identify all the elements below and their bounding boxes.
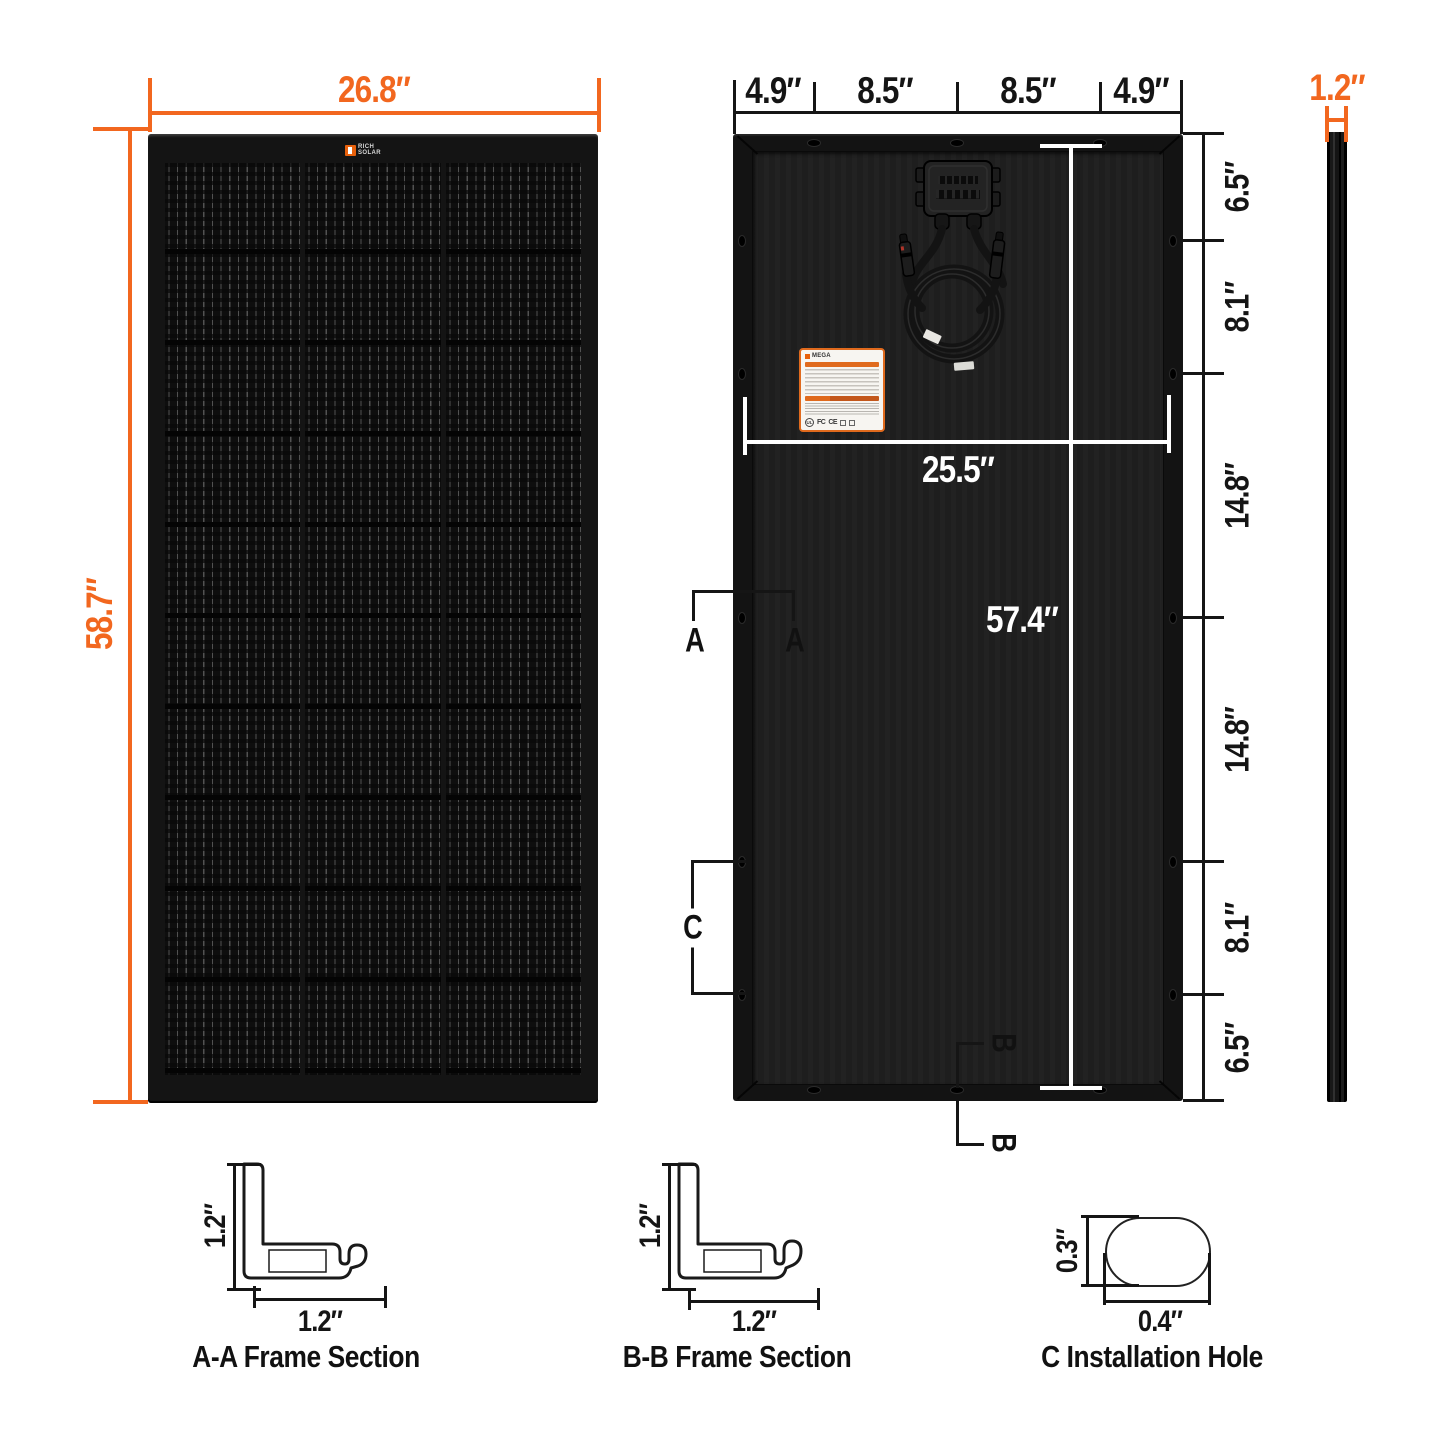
front-width-dim-line [148,111,600,115]
back-top-dim-tick [813,82,816,113]
frame-hole [1170,236,1176,246]
rich-solar-logo-icon [345,145,356,156]
front-panel-view: RICH SOLAR [148,134,598,1103]
back-top-dim-tick [1099,82,1102,113]
spec-label-logo-icon [805,354,810,359]
back-right-dim-tick [1183,372,1224,375]
c-width-dim-tick [1208,1253,1211,1305]
c-height-dim-tick [1081,1284,1139,1287]
back-right-dim-tick [1183,860,1224,863]
side-thickness-label: 1.2″ [1309,67,1364,109]
solar-cell-grid [165,163,581,1075]
installation-hole-shape [1105,1217,1211,1287]
logo-line2: SOLAR [358,151,381,157]
spec-label: MEGA UL FC CE [799,348,885,432]
front-height-dim-tick-top [93,127,150,131]
spec-label-title-bar [805,362,879,367]
back-right-height-label-1: 6.5″ [1219,162,1258,213]
installation-hole-marker-c: C [681,909,705,948]
back-right-dim-tick [1183,616,1224,619]
spec-label-warning-bar [805,396,879,401]
cell-column-group [446,163,581,1075]
back-right-height-label-2: 8.1″ [1219,282,1258,333]
section-b-bracket-line [956,1101,959,1146]
ul-mark-icon: UL [805,418,814,427]
frame-hole [739,236,745,246]
back-top-width-label-2: 8.5″ [857,70,912,112]
rich-solar-logo: RICH SOLAR [345,145,381,156]
section-a-bracket-line [692,590,795,593]
section-marker-b-top: B [984,1033,1023,1053]
solar-panel-dimension-diagram: RICH SOLAR 26.8″ 58.7″ [0,0,1445,1445]
front-width-dim-tick-left [148,78,152,132]
frame-hole [951,140,963,146]
bb-width-dim-line [688,1300,820,1303]
bb-width-label: 1.2″ [732,1305,776,1339]
front-height-dim-line [128,129,132,1103]
spec-label-fine-print [805,403,879,415]
cell-column-group [165,163,300,1075]
back-top-width-label-4: 4.9″ [1113,70,1168,112]
back-top-width-label-1: 4.9″ [745,70,800,112]
spec-label-certifications: UL FC CE [805,418,879,427]
junction-box-and-cables [888,156,1028,376]
front-height-dim-tick-bottom [93,1100,148,1104]
side-thickness-dim-tick [1325,106,1329,142]
aa-width-dim-tick [384,1286,387,1308]
frame-hole [1170,857,1176,867]
c-hole-caption: C Installation Hole [1041,1339,1263,1375]
bb-section-caption: B-B Frame Section [623,1339,852,1375]
frame-hole [1170,613,1176,623]
aa-width-label: 1.2″ [298,1305,342,1339]
side-thickness-dim-tick [1344,106,1348,142]
section-b-bracket-line [956,1143,984,1146]
inner-height-dim-line [1069,146,1073,1090]
cert-square-icon [840,420,846,426]
frame-miter [1159,135,1180,155]
front-width-label: 26.8″ [338,69,410,111]
inner-width-label: 25.5″ [922,449,994,491]
aa-height-label: 1.2″ [199,1204,233,1248]
section-marker-b-bottom: B [984,1133,1023,1153]
fcc-mark-icon: FC [817,419,825,426]
c-width-dim-tick [1103,1253,1106,1305]
installation-hole-bracket-line [691,992,746,995]
inner-height-dim-cap-bottom [1040,1086,1102,1090]
back-top-dim-tick [733,80,736,134]
rich-solar-logo-text: RICH SOLAR [358,145,381,156]
bb-width-dim-tick [817,1288,820,1310]
frame-hole [808,140,820,146]
back-top-dim-tick [1180,80,1183,134]
aa-width-dim-tick [253,1286,256,1308]
bb-width-dim-tick [688,1288,691,1310]
back-top-width-label-3: 8.5″ [1000,70,1055,112]
section-a-bracket-line [792,590,795,621]
front-height-label: 58.7″ [79,578,121,650]
frame-miter [737,135,758,155]
back-right-dim-tick [1183,993,1224,996]
cert-square-icon [849,420,855,426]
frame-hole [1170,990,1176,1000]
c-height-label: 0.3″ [1051,1229,1085,1273]
side-panel-view [1327,132,1347,1102]
frame-miter [737,1080,758,1100]
c-width-dim-line [1103,1300,1211,1303]
frame-hole [808,1087,820,1093]
ce-mark-icon: CE [828,419,837,426]
front-width-dim-tick-right [597,78,601,132]
spec-label-brand: MEGA [812,353,831,359]
mc4-connector-left [898,233,915,276]
installation-hole-bracket-line [691,860,746,863]
mc4-connector-right [989,232,1006,279]
inner-width-dim-tick-left [743,397,747,455]
frame-miter [1159,1080,1180,1100]
bb-height-dim-line [668,1164,671,1290]
back-top-dim-tick [956,82,959,113]
bb-height-label: 1.2″ [634,1204,668,1248]
aa-frame-section-profile [237,1160,387,1292]
frame-hole [1170,369,1176,379]
bb-height-dim-tick [662,1163,696,1166]
back-right-height-label-6: 6.5″ [1219,1023,1258,1074]
section-marker-a-left: A [685,622,705,661]
aa-height-dim-line [233,1164,236,1290]
back-right-dim-tick [1183,1099,1224,1102]
back-right-height-label-5: 8.1″ [1219,903,1258,954]
aa-height-dim-tick [227,1163,261,1166]
c-height-dim-tick [1081,1215,1139,1218]
c-height-dim-line [1086,1215,1089,1287]
back-right-height-label-4: 14.8″ [1219,707,1258,773]
c-width-label: 0.4″ [1138,1305,1182,1339]
section-marker-a-right: A [785,622,805,661]
aa-width-dim-line [253,1298,387,1301]
section-b-bracket-line [956,1042,984,1045]
aa-section-caption: A-A Frame Section [192,1339,420,1375]
spec-label-header: MEGA [805,353,879,360]
back-right-dim-tick [1183,239,1224,242]
side-thickness-dim-line [1325,118,1348,122]
spec-label-table [805,369,879,395]
inner-height-dim-cap-top [1040,144,1102,148]
back-right-dim-tick [1183,132,1224,135]
back-right-height-label-3: 14.8″ [1219,463,1258,529]
back-panel-view: MEGA UL FC CE [733,134,1183,1101]
cell-column-group [305,163,440,1075]
frame-hole [739,369,745,379]
inner-width-dim-line [745,440,1169,444]
inner-height-label: 57.4″ [986,599,1058,641]
section-a-bracket-line [692,590,695,621]
section-b-bracket-line [956,1044,959,1088]
bb-frame-section-profile [672,1160,822,1292]
frame-hole [739,613,745,623]
inner-width-dim-tick-right [1167,395,1171,453]
